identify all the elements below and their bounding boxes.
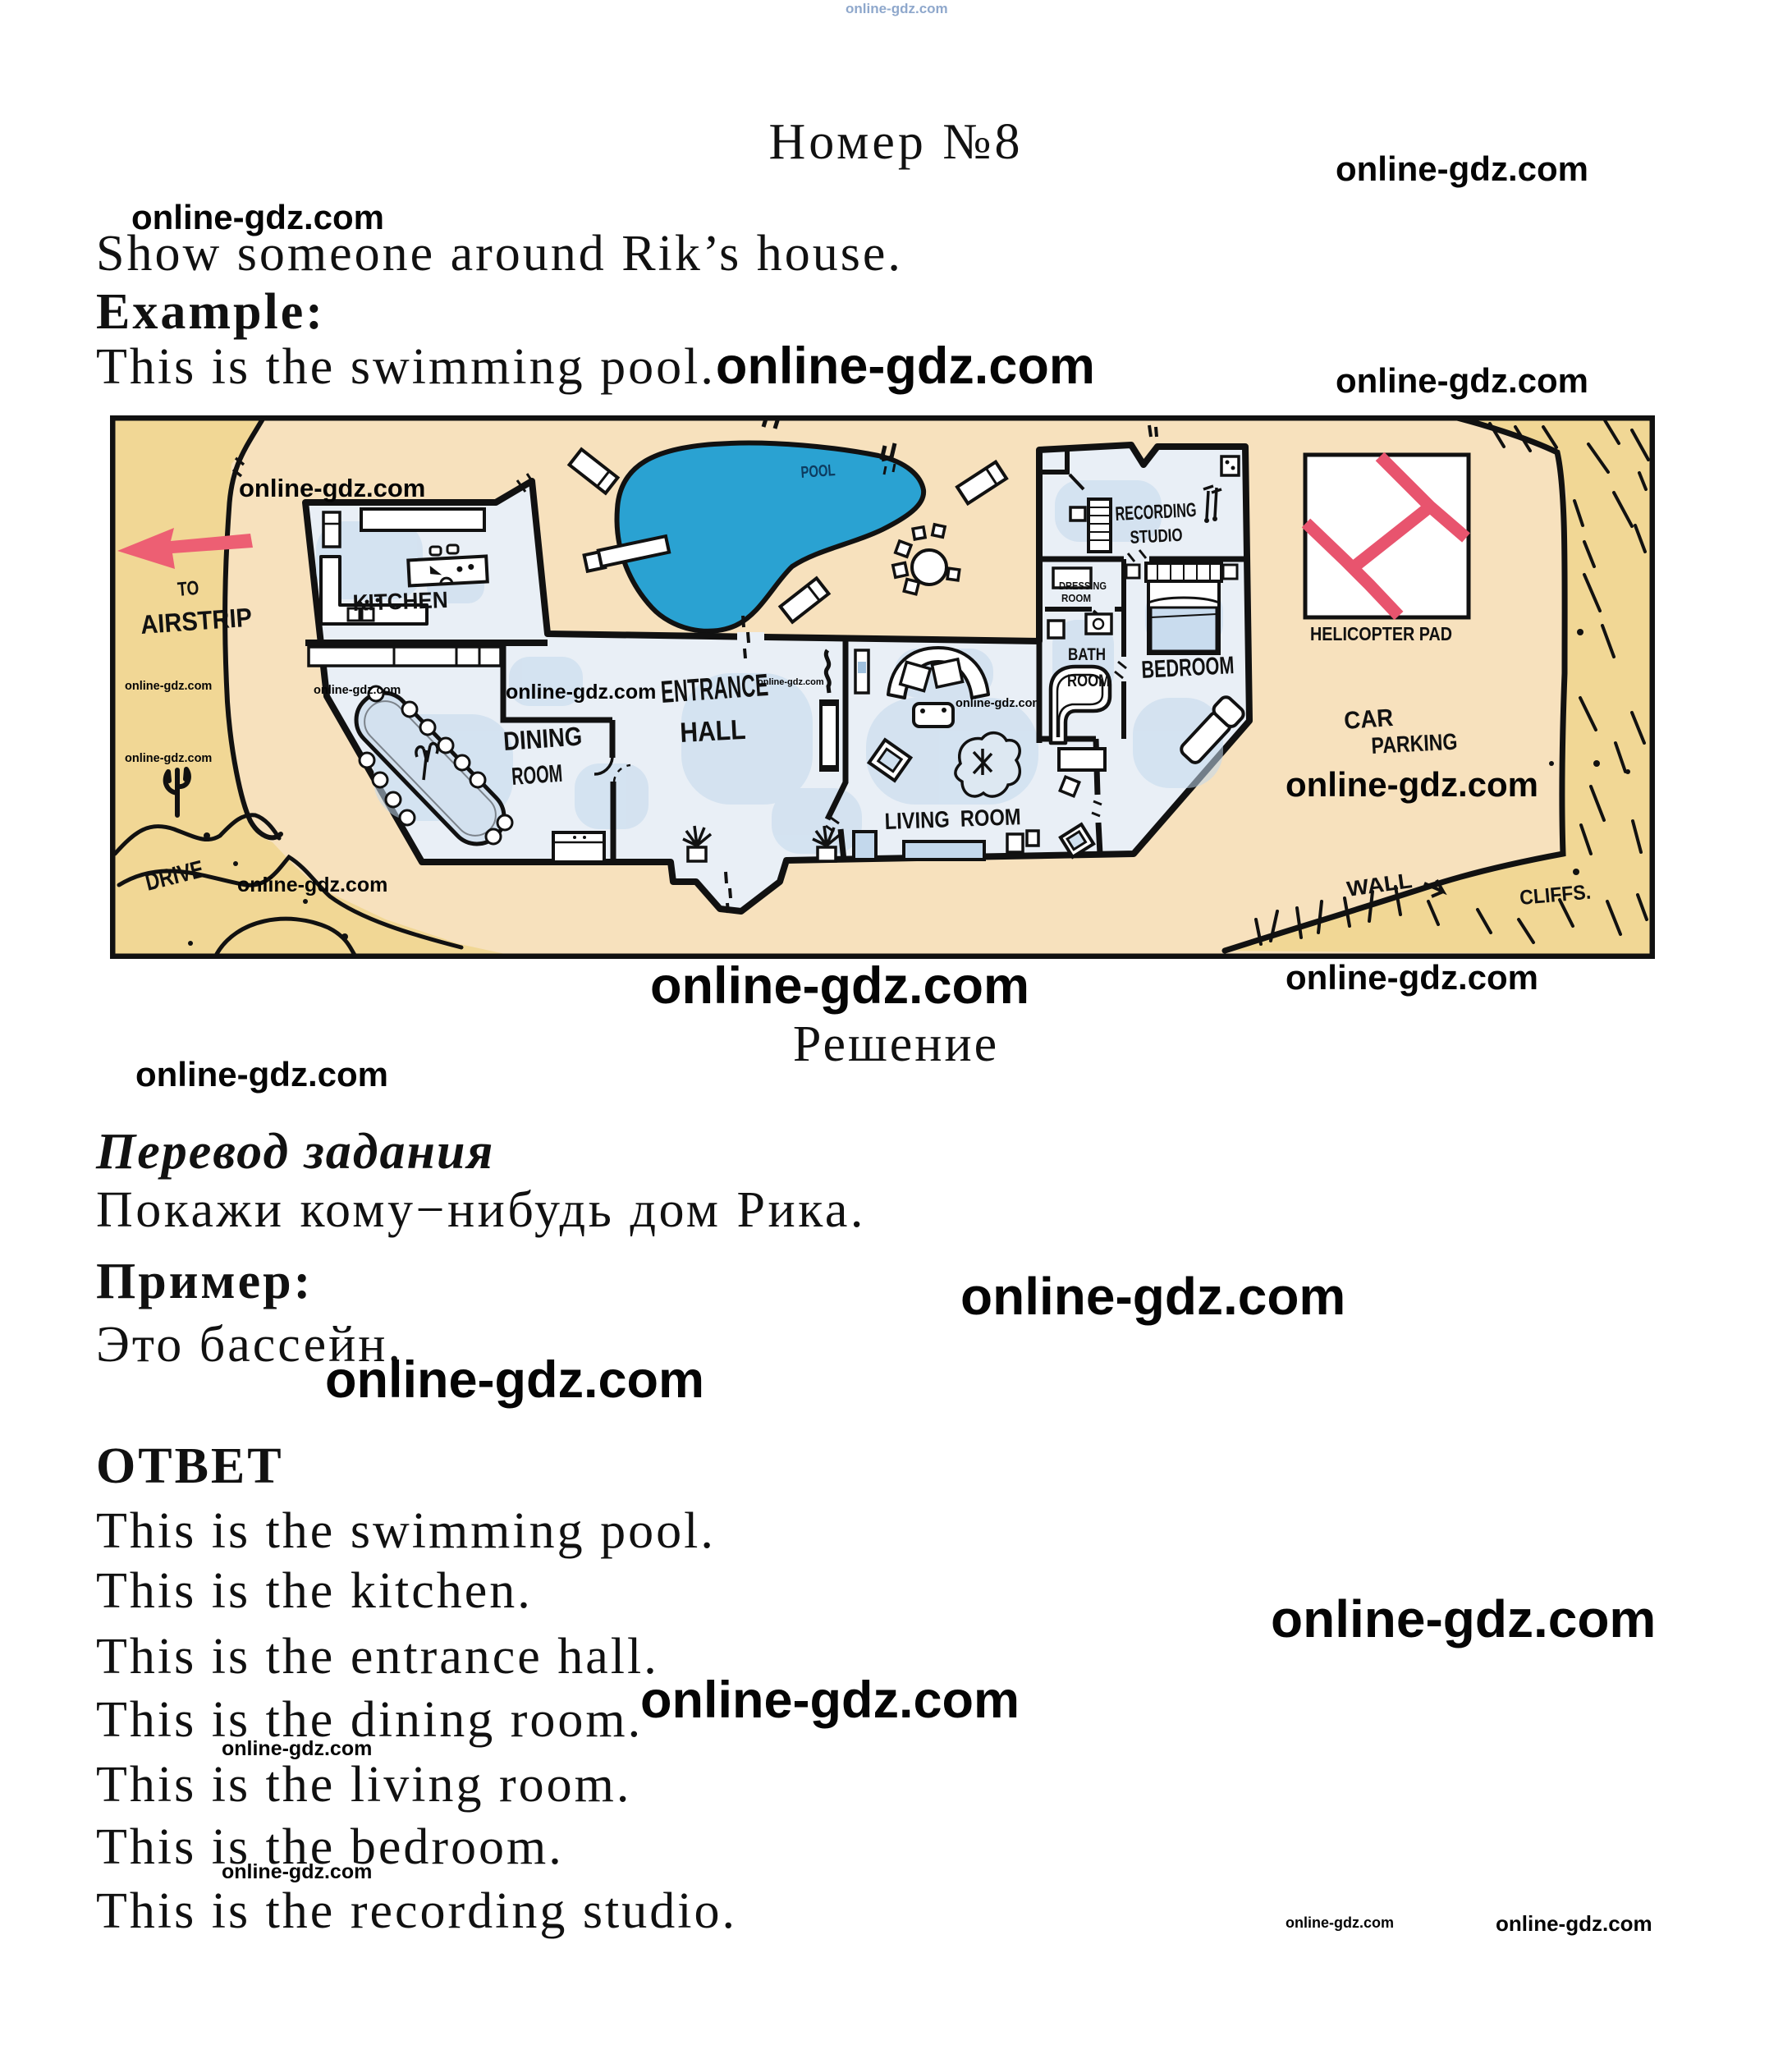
svg-text:STUDIO: STUDIO [1130, 525, 1183, 548]
svg-text:online-gdz.com: online-gdz.com [956, 697, 1043, 710]
svg-text:online-gdz.com: online-gdz.com [1286, 765, 1538, 804]
svg-text:LIVING ROOM: LIVING ROOM [884, 804, 1021, 834]
svg-text:HALL: HALL [679, 714, 746, 749]
svg-text:online-gdz.com: online-gdz.com [125, 752, 212, 765]
svg-text:HELICOPTER PAD: HELICOPTER PAD [1310, 623, 1452, 644]
svg-text:PARKING: PARKING [1371, 729, 1458, 759]
svg-text:ROOM: ROOM [1061, 592, 1091, 604]
svg-text:online-gdz.com: online-gdz.com [239, 474, 425, 502]
svg-text:POOL: POOL [800, 461, 836, 482]
svg-text:BATH: BATH [1068, 645, 1106, 664]
svg-text:DRESSING: DRESSING [1059, 580, 1107, 592]
svg-text:RECORDING: RECORDING [1115, 499, 1197, 525]
svg-text:ROOM: ROOM [511, 760, 563, 791]
svg-text:TO: TO [176, 577, 199, 601]
svg-text:online-gdz.com: online-gdz.com [758, 677, 824, 687]
svg-text:online-gdz.com: online-gdz.com [125, 680, 212, 693]
svg-text:DINING: DINING [502, 721, 583, 756]
svg-text:online-gdz.com: online-gdz.com [237, 873, 387, 896]
svg-text:online-gdz.com: online-gdz.com [506, 681, 656, 704]
svg-text:BEDROOM: BEDROOM [1141, 652, 1235, 684]
svg-text:KITCHEN: KITCHEN [352, 587, 448, 616]
svg-text:CAR: CAR [1343, 704, 1394, 735]
svg-text:ROOM: ROOM [1067, 672, 1110, 690]
svg-text:online-gdz.com: online-gdz.com [314, 684, 401, 697]
